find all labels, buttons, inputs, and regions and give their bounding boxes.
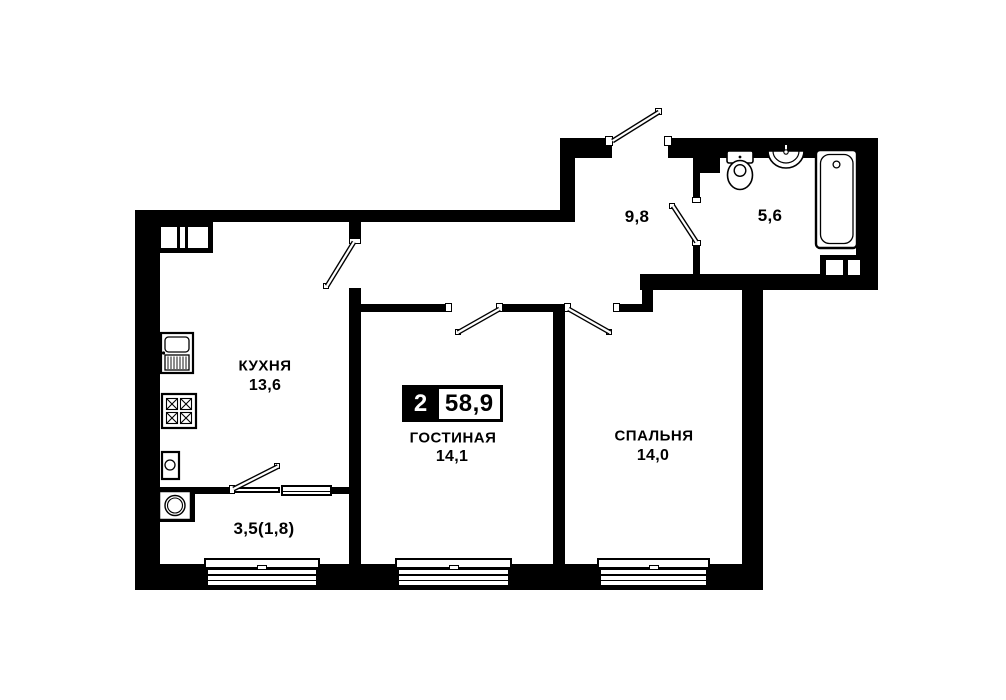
fixtures-layer [0,0,1006,700]
bedroom-area: 14,0 [637,447,669,465]
bedroom-label: СПАЛЬНЯ [614,428,693,445]
total-area: 58,9 [439,389,500,419]
bathroom-door-swing-icon [673,206,697,242]
washing-machine-icon [156,488,195,522]
water-heater-icon [162,452,179,479]
living-door-swing-icon [458,309,500,333]
bedroom-door-swing-icon [569,309,611,333]
balcony-door-swing-icon [234,467,279,490]
bathroom-area: 5,6 [758,206,783,226]
kitchen-area: 13,6 [249,377,281,395]
kitchen-door-swing-icon [327,242,354,286]
kitchen-sink-icon [161,333,193,373]
stove-icon [162,394,196,428]
apartment-type-badge: 2 58,9 [402,385,503,422]
bathtub-icon [816,150,857,248]
entrance-door-swing-icon [613,112,660,141]
hallway-area: 9,8 [625,207,650,227]
rooms-count: 2 [402,385,439,422]
bath-sink-icon [768,145,804,169]
living-label: ГОСТИНАЯ [410,430,497,447]
floor-plan: КУХНЯ 13,6 ГОСТИНАЯ 14,1 СПАЛЬНЯ 14,0 9,… [0,0,1006,700]
toilet-icon [727,151,753,190]
kitchen-label: КУХНЯ [239,358,292,375]
living-area: 14,1 [436,448,468,466]
balcony-area: 3,5(1,8) [234,519,295,539]
